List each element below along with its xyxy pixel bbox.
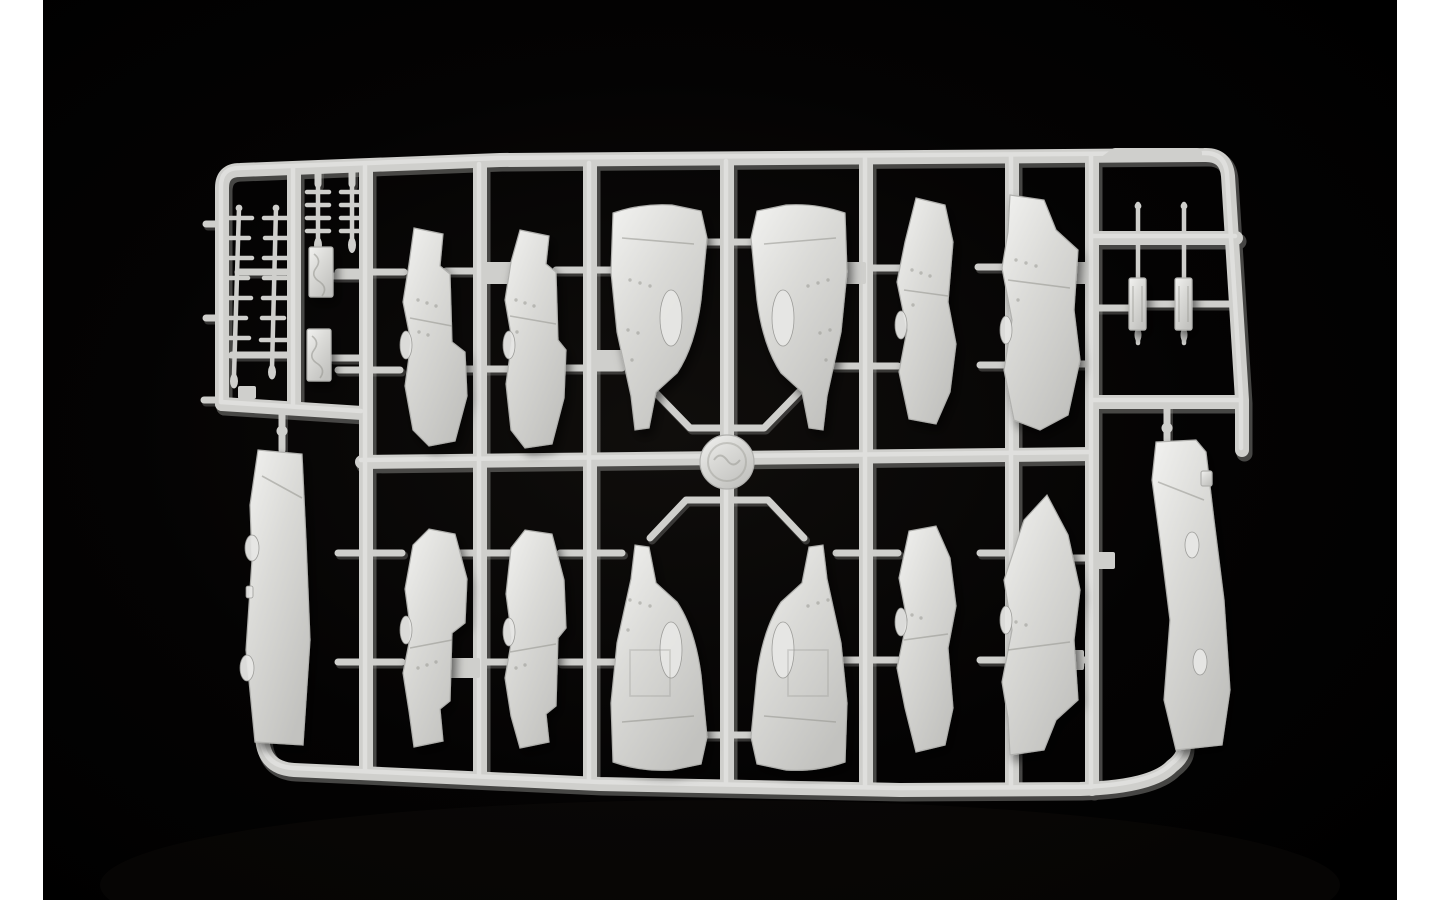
sprue-photo bbox=[0, 0, 1440, 900]
logo-disc bbox=[700, 435, 754, 489]
part-crane-body-right bbox=[1175, 278, 1192, 330]
part-detail-block-1 bbox=[309, 247, 333, 297]
part-crane-body-left bbox=[1129, 278, 1146, 330]
part-side-strip-right-lug bbox=[1201, 471, 1212, 486]
part-side-strip-left bbox=[246, 450, 310, 745]
sprue-photo-canvas bbox=[0, 0, 1440, 900]
part-detail-block-2 bbox=[307, 329, 331, 381]
